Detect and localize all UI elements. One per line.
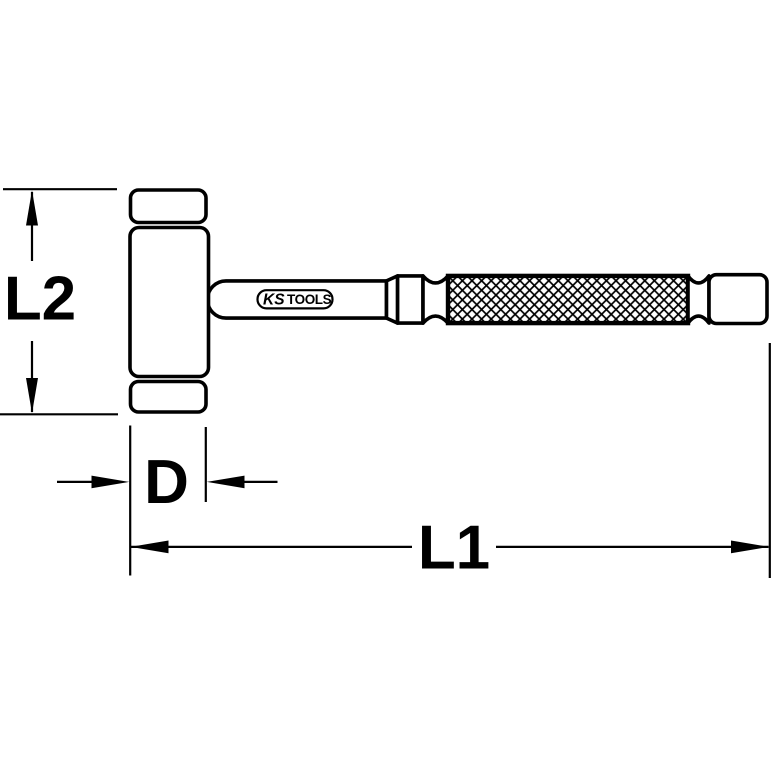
handle-collar [398,276,423,323]
l1-arrow-right-head [731,541,769,554]
l2-label: L2 [4,265,76,334]
knurl-grip [448,276,688,323]
dimension-l1: L1 [131,343,770,583]
technical-drawing-canvas: KS TOOLS L2 D [0,0,772,772]
d-arrow-left-head [92,476,130,489]
hammer-head [130,190,209,412]
l2-arrow-down-head [26,378,38,413]
l1-arrow-left-head [131,541,169,554]
l1-label: L1 [418,514,490,583]
logo-text-ks: KS [263,292,285,309]
logo-text-tools: TOOLS [287,292,332,307]
head-top-cap [131,190,207,223]
hammer-drawing: KS TOOLS L2 D [0,0,772,772]
head-bottom-cap [131,382,207,413]
head-body [130,228,209,377]
dimension-l2: L2 [0,189,118,414]
d-label: D [144,448,189,517]
handle-neck-right [688,276,709,323]
ks-tools-logo: KS TOOLS [258,290,333,308]
l2-arrow-up-head [26,190,38,225]
handle-end-cap [709,275,767,324]
handle-neck-left [423,276,448,323]
d-arrow-right-head [207,476,245,489]
